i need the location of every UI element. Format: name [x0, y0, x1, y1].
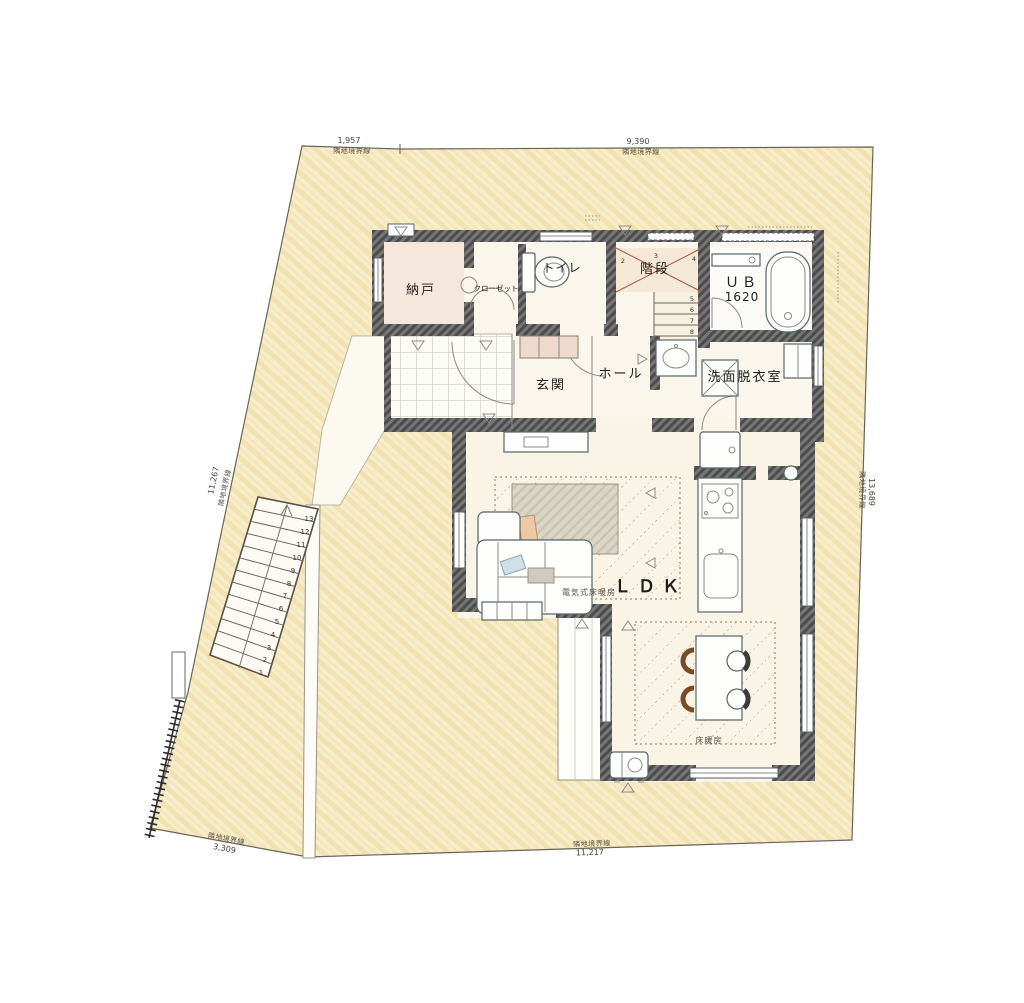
indoor-step-2: 2 — [621, 257, 625, 265]
room-label-ldk: ＬＤＫ — [614, 577, 686, 597]
annotation-electric-floor-heating: 電気式床暖房 — [562, 587, 616, 597]
step-6: 6 — [279, 605, 284, 613]
floor-plan-drawing: 1,957 隣地境界線 9,390 隣地境界線 11,267 隣地境界線 隣地境… — [0, 0, 1024, 1003]
floor-plan-canvas: 1,957 隣地境界線 9,390 隣地境界線 11,267 隣地境界線 隣地境… — [0, 0, 1024, 1003]
room-label-washroom: 洗面脱衣室 — [707, 369, 782, 385]
step-9: 9 — [291, 567, 295, 575]
step-8: 8 — [287, 580, 291, 588]
room-label-storage: 納戸 — [406, 283, 436, 298]
room-label-stairs: 階段 — [640, 262, 670, 277]
indoor-step-8: 8 — [690, 328, 694, 336]
indoor-step-7: 7 — [690, 317, 694, 325]
room-label-bath: ＵＢ — [725, 275, 759, 291]
step-3: 3 — [267, 644, 271, 652]
floor-cushion — [518, 515, 537, 543]
fence-post — [172, 652, 185, 698]
step-11: 11 — [297, 541, 306, 549]
step-5: 5 — [275, 618, 279, 626]
dim-top-left: 1,957 — [338, 136, 361, 145]
room-label-bath-size: 1620 — [725, 290, 760, 304]
refrigerator — [700, 432, 740, 468]
dim-right: 13,689 — [867, 478, 876, 506]
step-10: 10 — [293, 554, 302, 562]
shoe-cabinet — [520, 336, 578, 358]
annotation-floor-heating: 床暖房 — [696, 735, 723, 745]
step-2: 2 — [263, 656, 267, 664]
kitchen-counter — [698, 478, 742, 612]
boundary-label-right: 隣地境界線 — [858, 471, 867, 509]
room-label-closet: クローゼット — [474, 283, 519, 293]
room-label-hall: ホール — [598, 367, 643, 382]
room-label-toilet: トイレ — [542, 261, 581, 275]
ac-outdoor-unit — [610, 752, 648, 782]
washroom-cabinet — [784, 344, 812, 378]
vanity — [656, 340, 696, 376]
step-13: 13 — [305, 515, 314, 523]
room-label-entrance: 玄関 — [536, 378, 566, 393]
tv-board — [504, 432, 588, 452]
indoor-step-6: 6 — [690, 306, 694, 314]
dim-left: 11,267 — [206, 466, 221, 495]
boundary-label-top-right: 隣地境界線 — [622, 147, 660, 156]
garden-steps — [482, 602, 542, 620]
dim-bottom: 11,217 — [576, 848, 604, 858]
step-4: 4 — [271, 631, 276, 639]
indoor-step-4: 4 — [692, 255, 696, 263]
indoor-step-1: 1 — [613, 286, 617, 294]
sofa-cushion-gray — [528, 568, 554, 583]
indoor-step-3: 3 — [654, 252, 658, 260]
step-7: 7 — [283, 592, 287, 600]
dim-top-right: 9,390 — [627, 137, 650, 146]
boundary-label-top-left: 隣地境界線 — [333, 146, 371, 155]
step-12: 12 — [301, 528, 310, 536]
structural-post — [784, 466, 798, 480]
indoor-step-5: 5 — [690, 295, 694, 303]
step-1: 1 — [259, 669, 263, 677]
